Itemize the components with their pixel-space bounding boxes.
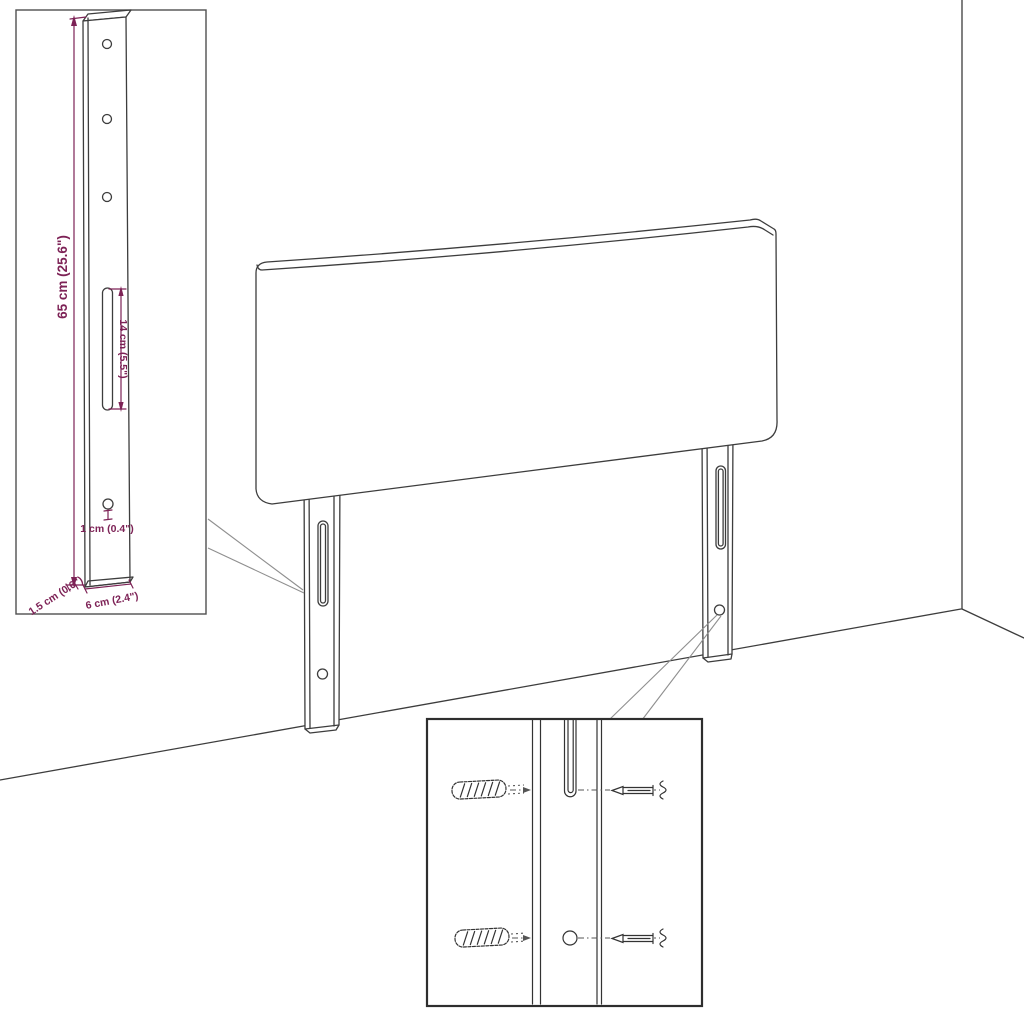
diagram-canvas: 65 cm (25.6") 14 cm (5.5") 1 cm (0.4") 1…	[0, 0, 1024, 1024]
leg-detail-inset: 65 cm (25.6") 14 cm (5.5") 1 cm (0.4") 1…	[16, 10, 206, 618]
headboard-panel	[256, 219, 777, 504]
callout-wedge-left	[208, 519, 304, 593]
product-diagram: 65 cm (25.6") 14 cm (5.5") 1 cm (0.4") 1…	[0, 0, 1024, 1024]
mount-detail-inset	[427, 719, 702, 1006]
dimension-hole-label: 1 cm (0.4")	[80, 523, 133, 535]
leg-detail-drawing	[83, 10, 133, 587]
dimension-slot-label: 14 cm (5.5")	[117, 319, 129, 378]
headboard-right-leg	[702, 425, 733, 662]
floor-line-right	[962, 609, 1024, 638]
dimension-height-label: 65 cm (25.6")	[55, 235, 70, 319]
headboard-left-leg	[304, 464, 340, 733]
